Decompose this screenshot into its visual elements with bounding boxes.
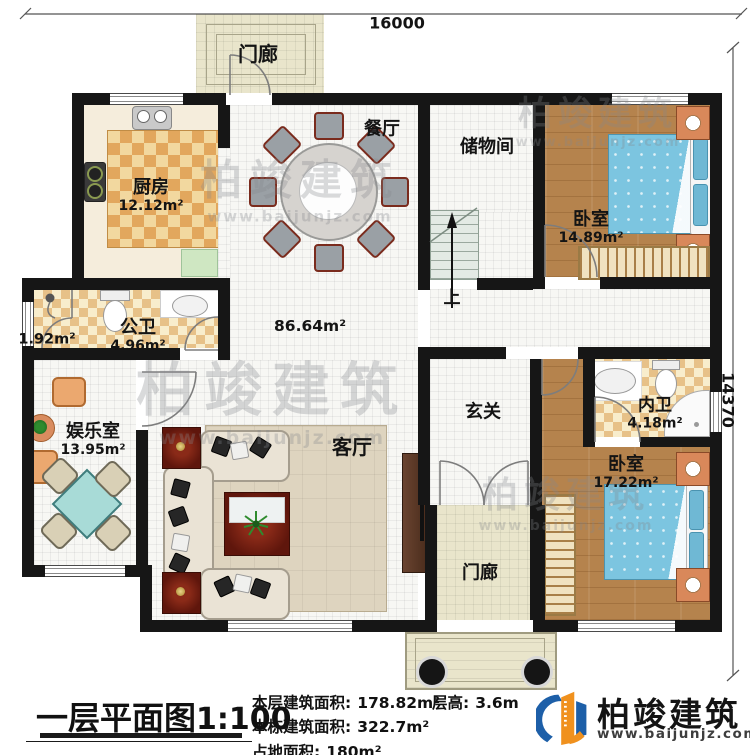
bed1-pillow [693, 184, 708, 226]
stat-building-area: 本栋建筑面积:322.7m² [252, 715, 440, 739]
stat-floor-area: 本层建筑面积:178.82m² [252, 691, 440, 715]
window-living [228, 620, 352, 632]
room-label-foyer: 玄关 [465, 401, 501, 422]
porch-column-right [524, 659, 550, 685]
wall-porchB-right [533, 505, 545, 632]
nightstand [676, 106, 710, 140]
room-label-bedroom1: 卧室14.89m² [558, 209, 623, 247]
kitchen-sink-basin-right [154, 110, 167, 123]
room-label-living: 客厅 [332, 436, 372, 460]
wall-kitchen-bottom [22, 278, 230, 290]
dimension-top-label: 16000 [369, 15, 425, 34]
armchair [52, 377, 86, 407]
brand-logo-icon [536, 686, 592, 748]
wall-bedroom1-bottom-b [600, 277, 722, 289]
room-label-inner-bath: 内卫4.18m² [627, 396, 682, 433]
window-bedroom2 [578, 620, 675, 632]
room-label-hall-area: 86.64m² [274, 317, 346, 335]
bath-sink [172, 295, 208, 317]
porch-column-left [419, 659, 445, 685]
wall-innerbath-bottom-a [583, 437, 595, 447]
staircase [430, 210, 479, 280]
dining-chair [314, 244, 344, 272]
wall-innerbath-top [578, 347, 712, 359]
nightstand [676, 568, 710, 602]
logo-swoosh [536, 695, 562, 743]
inner-bath-sink [594, 368, 636, 394]
room-label-dining: 餐厅 [364, 118, 400, 139]
area-stats: 本层建筑面积:178.82m² 本栋建筑面积:322.7m² 占地面积:180m… [252, 691, 440, 755]
bed-bedroom2 [604, 484, 692, 580]
title-underline-thin [26, 741, 252, 742]
sofa-pillow [230, 441, 250, 461]
wardrobe-bedroom1 [578, 246, 710, 280]
inner-toilet-bowl [655, 369, 677, 399]
wall-dining-storage [418, 93, 430, 290]
sofa-pillow [171, 533, 191, 553]
end-table-lamp [176, 587, 185, 596]
floor-plan-canvas: 柏竣建筑www.baijunjz.com 柏竣建筑www.baijunjz.co… [0, 0, 750, 755]
wall-porchB-left [425, 505, 437, 632]
title-underline-thick [40, 733, 242, 738]
wall-storage-bedroom1 [533, 93, 545, 277]
stairs-up-label: 上 [444, 288, 461, 308]
stat-footprint-area: 占地面积:180m² [252, 740, 440, 755]
dining-chair [381, 177, 409, 207]
end-table-lamp [176, 442, 185, 451]
foyer-floor [430, 359, 530, 505]
stove-burner-1 [87, 166, 103, 182]
wall-foyer-top [418, 347, 506, 359]
potted-plant-icon [33, 420, 47, 434]
corridor-floor [430, 289, 710, 347]
kitchen-pass-through [218, 148, 230, 278]
dimension-right-label: 14370 [718, 372, 737, 428]
room-label-bedroom2: 卧室17.22m² [593, 454, 658, 492]
dining-table-center [299, 162, 357, 220]
bedroom2-entry-strip [542, 359, 583, 447]
bed2-pillow [689, 490, 704, 530]
wall-bedroom1-bottom-a [533, 277, 545, 289]
coffee-table-glass [229, 497, 285, 523]
nightstand [676, 452, 710, 486]
kitchen-mat [181, 249, 218, 277]
shower-drain [694, 422, 699, 427]
window-bedroom1 [612, 93, 688, 105]
stat-floor-height: 层高:3.6m [432, 691, 519, 715]
room-label-storage: 储物间 [460, 136, 514, 157]
room-label-kitchen: 厨房12.12m² [118, 177, 183, 215]
stair-landing-floor [477, 212, 533, 278]
window-kitchen [110, 93, 183, 105]
logo-building-blue [576, 701, 586, 737]
room-label-entertainment: 娱乐室13.95m² [60, 421, 125, 459]
wall-left-upper [72, 93, 84, 290]
wardrobe-bedroom2 [544, 494, 576, 616]
dining-chair [249, 177, 277, 207]
bed1-pillow [693, 138, 708, 180]
wall-right [710, 93, 722, 632]
room-label-porch-top: 门廊 [238, 43, 278, 67]
wall-foyer-left [418, 347, 430, 505]
dining-chair [314, 112, 344, 140]
kitchen-sink-basin-left [137, 110, 150, 123]
brand-website: www.baijunjz.com [597, 726, 750, 742]
stove-burner-2 [87, 183, 103, 199]
bed2-pillow [689, 532, 704, 572]
wall-innerbath-bottom-b [640, 437, 710, 447]
room-label-public-bath: 公卫4.96m² [110, 317, 165, 355]
wall-innerbath-left [583, 359, 595, 447]
wall-landing-bottom [477, 278, 533, 290]
wall-entertainment-living [136, 430, 148, 577]
storage-floor [430, 105, 533, 212]
window-entertainment [45, 565, 125, 577]
door-opening-top-porch [226, 93, 272, 105]
room-label-bath-small: 1.92m² [18, 331, 75, 348]
room-label-porch-bottom: 门廊 [462, 562, 498, 583]
wall-bath-right [218, 278, 230, 360]
